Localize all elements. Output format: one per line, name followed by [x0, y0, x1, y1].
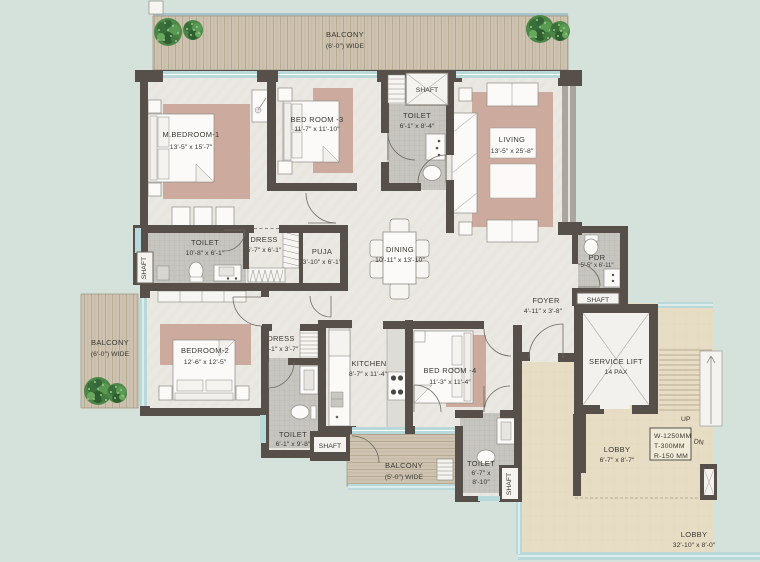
svg-text:W-1250MM: W-1250MM: [654, 433, 691, 440]
svg-text:4′-11″ x 3′-8″: 4′-11″ x 3′-8″: [524, 308, 563, 315]
svg-text:BALCONY: BALCONY: [385, 461, 423, 470]
svg-text:6′-1″ x 9′-8″: 6′-1″ x 9′-8″: [276, 441, 311, 448]
svg-text:SERVICE LIFT: SERVICE LIFT: [589, 357, 643, 366]
svg-text:BEDROOM-2: BEDROOM-2: [181, 346, 229, 355]
svg-text:TOILET: TOILET: [403, 111, 431, 120]
svg-text:32′-10″ x 8′-0″: 32′-10″ x 8′-0″: [673, 542, 716, 549]
svg-text:10′-11″ x 13′-10″: 10′-11″ x 13′-10″: [375, 257, 425, 264]
svg-text:SHAFT: SHAFT: [319, 443, 342, 450]
svg-text:BALCONY: BALCONY: [326, 30, 364, 39]
svg-text:11′-7″ x 11′-10″: 11′-7″ x 11′-10″: [294, 126, 340, 133]
svg-text:6′-1″ x 8′-4″: 6′-1″ x 8′-4″: [400, 123, 435, 130]
svg-text:M.BEDROOM-1: M.BEDROOM-1: [162, 130, 219, 139]
svg-text:SHAFT: SHAFT: [587, 297, 610, 304]
svg-text:T-300MM: T-300MM: [654, 443, 685, 450]
svg-text:5′-7″ x 6′-1″: 5′-7″ x 6′-1″: [247, 247, 282, 254]
svg-text:13′-5″ x 25′-8″: 13′-5″ x 25′-8″: [491, 148, 534, 155]
svg-text:13′-5″ x 15′-7″: 13′-5″ x 15′-7″: [170, 144, 213, 151]
svg-text:PUJA: PUJA: [312, 247, 332, 256]
svg-text:6′-7″ x 8′-7″: 6′-7″ x 8′-7″: [600, 457, 635, 464]
svg-text:TOILET: TOILET: [191, 238, 219, 247]
svg-text:R-150 MM: R-150 MM: [654, 453, 688, 460]
svg-text:DRESS: DRESS: [250, 235, 277, 244]
svg-text:DN: DN: [693, 438, 704, 446]
svg-text:5′-5″ x 6′-11″: 5′-5″ x 6′-11″: [580, 263, 614, 269]
svg-text:LOBBY: LOBBY: [604, 445, 631, 454]
svg-text:TOILET: TOILET: [279, 430, 307, 439]
svg-text:8′-7″ x 11′-4″: 8′-7″ x 11′-4″: [349, 371, 388, 378]
svg-text:(6′-0″) WIDE: (6′-0″) WIDE: [91, 351, 130, 358]
svg-text:LOBBY: LOBBY: [681, 530, 708, 539]
svg-text:SHAFT: SHAFT: [416, 87, 439, 94]
svg-text:KITCHEN: KITCHEN: [351, 359, 386, 368]
svg-text:SHAFT: SHAFT: [506, 473, 513, 496]
svg-text:UP: UP: [681, 416, 691, 423]
svg-text:11′-3″ x 11′-4″: 11′-3″ x 11′-4″: [429, 379, 471, 386]
svg-text:LIVING: LIVING: [499, 135, 525, 144]
svg-text:BED ROOM -4: BED ROOM -4: [424, 366, 477, 375]
svg-text:3′-10″ x 6′-1″: 3′-10″ x 6′-1″: [303, 259, 342, 266]
svg-text:(6′-0″) WIDE: (6′-0″) WIDE: [326, 43, 365, 50]
svg-text:SHAFT: SHAFT: [141, 257, 148, 280]
svg-text:BALCONY: BALCONY: [91, 338, 129, 347]
svg-text:DINING: DINING: [386, 245, 414, 254]
svg-text:BED ROOM -3: BED ROOM -3: [291, 115, 344, 124]
svg-text:FOYER: FOYER: [532, 296, 560, 305]
svg-text:6′-7″ x: 6′-7″ x: [471, 470, 491, 477]
svg-text:(5′-0″) WIDE: (5′-0″) WIDE: [385, 474, 424, 481]
svg-text:DRESS: DRESS: [267, 334, 294, 343]
svg-text:12′-6″ x 12′-5″: 12′-6″ x 12′-5″: [184, 359, 227, 366]
svg-text:10′-8″ x 6′-1″: 10′-8″ x 6′-1″: [186, 250, 225, 257]
svg-text:TOILET: TOILET: [467, 459, 495, 468]
svg-text:PDR: PDR: [589, 253, 606, 262]
svg-text:8′-10″: 8′-10″: [472, 479, 490, 486]
svg-text:14 PAX: 14 PAX: [605, 369, 628, 376]
